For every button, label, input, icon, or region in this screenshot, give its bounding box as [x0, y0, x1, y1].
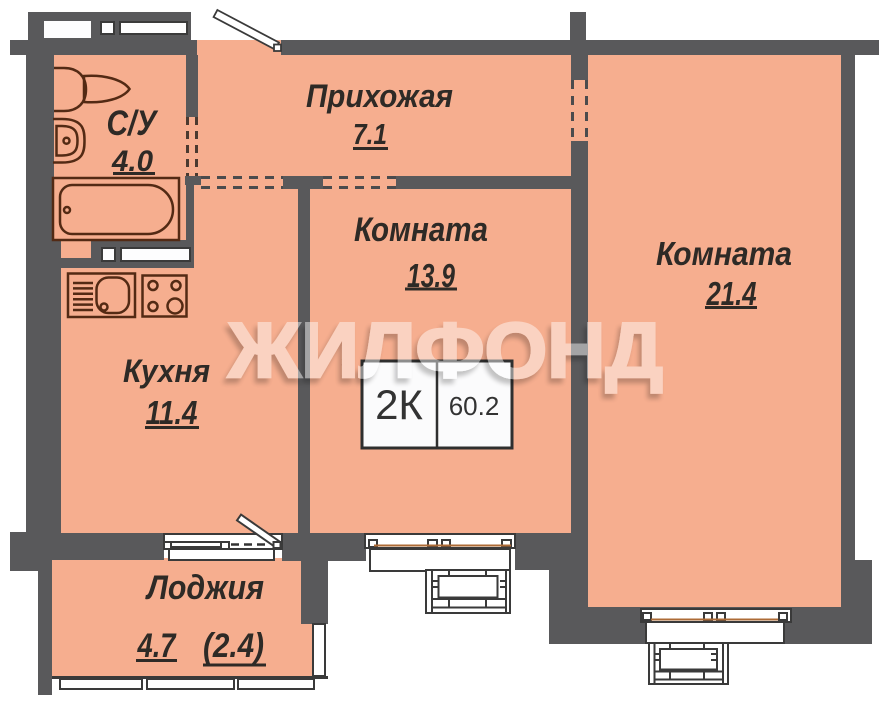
svg-text:Кухня: Кухня: [123, 353, 210, 389]
svg-text:ЖИЛФОНД: ЖИЛФОНД: [227, 306, 663, 394]
svg-text:Комната: Комната: [354, 211, 488, 249]
svg-text:Комната: Комната: [656, 235, 792, 272]
svg-text:С/У: С/У: [107, 104, 159, 143]
svg-text:Лоджия: Лоджия: [144, 569, 264, 607]
svg-text:Прихожая: Прихожая: [306, 78, 453, 114]
svg-text:11.4: 11.4: [146, 394, 198, 431]
svg-text:60.2: 60.2: [449, 391, 500, 421]
svg-text:(2.4): (2.4): [203, 627, 264, 665]
svg-text:7.1: 7.1: [353, 119, 387, 151]
